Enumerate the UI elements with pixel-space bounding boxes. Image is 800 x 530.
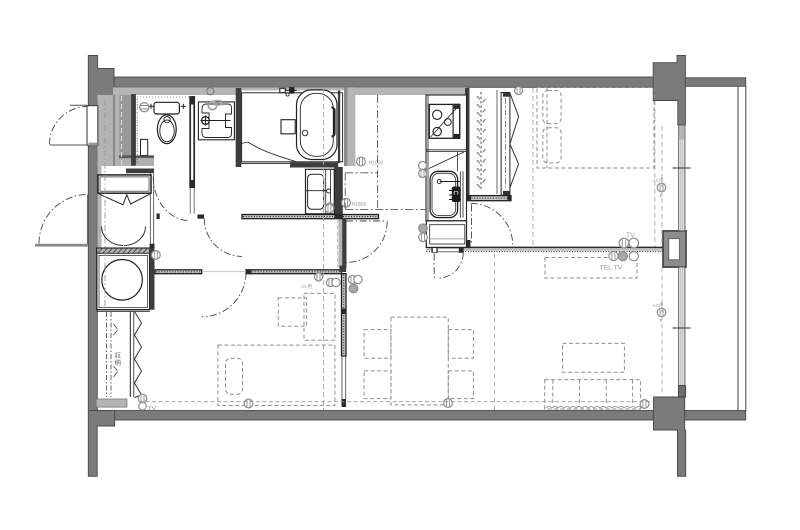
svg-text:TV: TV <box>148 406 157 413</box>
svg-text:納: 納 <box>115 358 122 367</box>
svg-text:TEL TV: TEL TV <box>600 265 623 272</box>
svg-text:TV: TV <box>626 232 635 239</box>
svg-text:収: 収 <box>115 352 122 360</box>
svg-text:H1000: H1000 <box>369 161 384 167</box>
svg-text:H1800: H1800 <box>352 202 367 208</box>
